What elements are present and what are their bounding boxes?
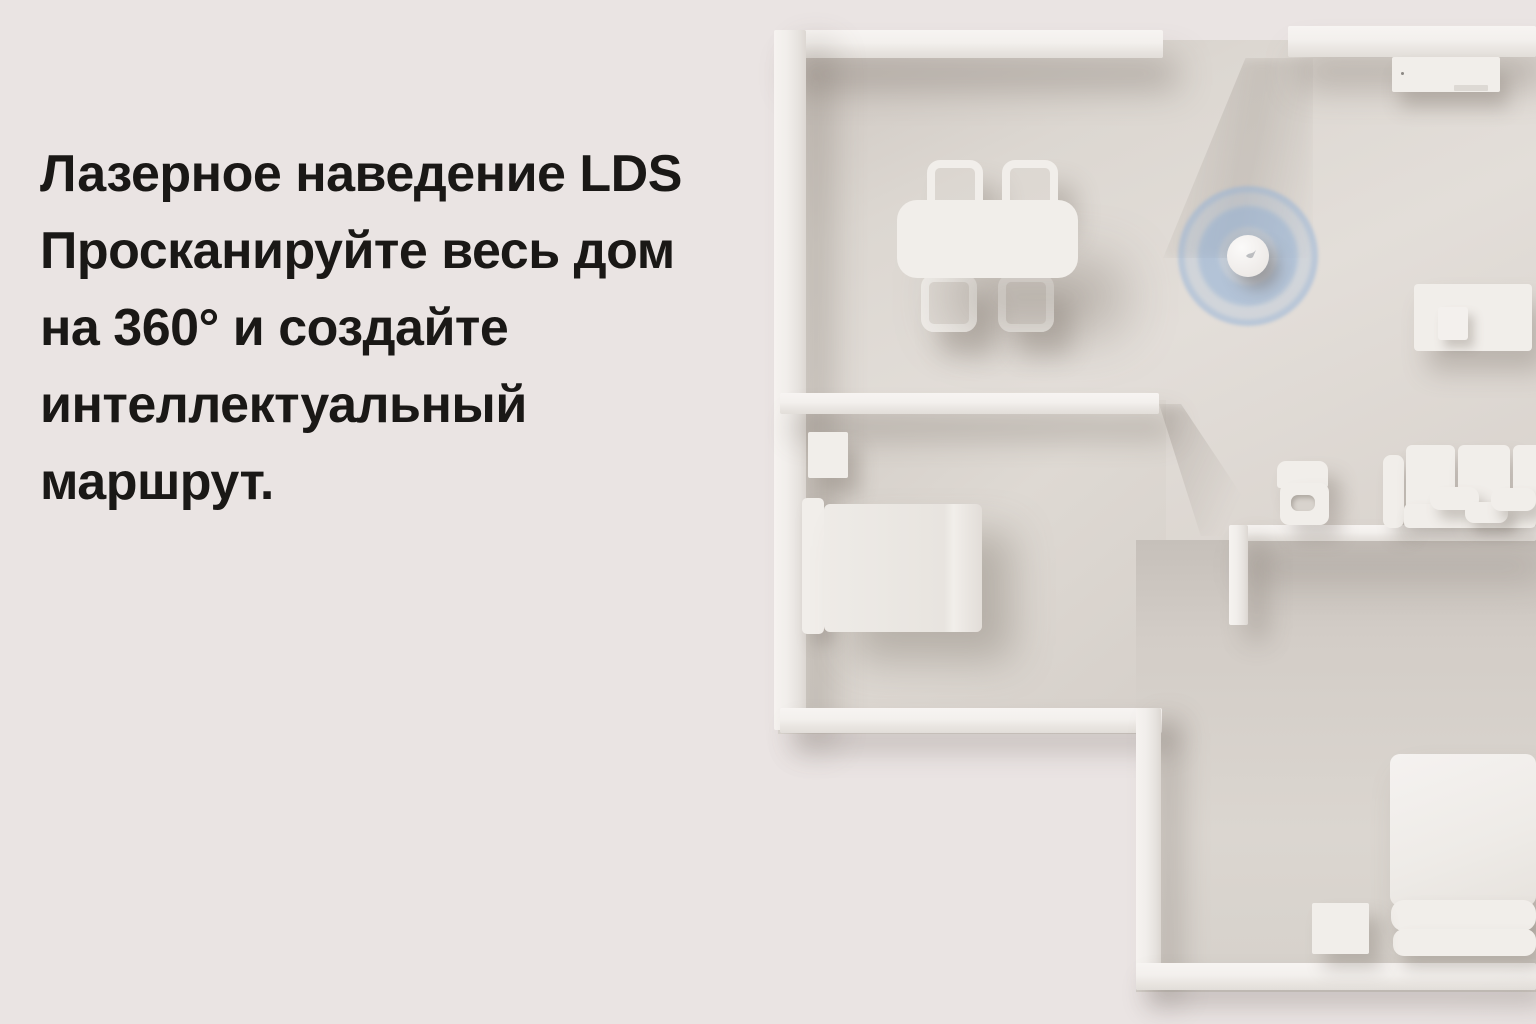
headline-line-3: на 360° и создайте (40, 290, 682, 367)
marketing-banner: Лазерное наведение LDS Просканируйте вес… (0, 0, 1536, 1024)
bed-mattress (824, 504, 982, 632)
tv-panel (1392, 57, 1500, 92)
wall-bedroom-divider (780, 393, 1159, 414)
wall-bottom (1136, 963, 1536, 990)
headline: Лазерное наведение LDS Просканируйте вес… (40, 136, 682, 521)
dining-chair-bottom-left (921, 274, 977, 332)
wall-bottom-room-left (1136, 708, 1161, 990)
storage-cube (1312, 903, 1369, 954)
wall-top-right (1288, 26, 1536, 57)
high-chair-hole (1291, 495, 1315, 511)
futon-roll-bottom (1393, 929, 1536, 956)
wall-living-vertical-arm (1229, 525, 1248, 625)
futon-roll-top (1391, 900, 1536, 931)
high-chair-seat (1280, 483, 1329, 525)
dining-table (897, 200, 1078, 278)
headline-line-2: Просканируйте весь дом (40, 213, 682, 290)
headline-line-5: маршрут. (40, 444, 682, 521)
bed-headboard (802, 498, 824, 634)
futon-panel (1390, 754, 1536, 906)
desk (1414, 284, 1532, 351)
nightstand (808, 432, 848, 478)
dining-chair-bottom-right (998, 274, 1054, 332)
sofa-armrest (1383, 455, 1404, 528)
headline-line-4: интеллектуальный (40, 367, 682, 444)
wall-bedroom-bottom (780, 708, 1162, 733)
robot-logo-icon (1245, 249, 1261, 261)
tv-indicator-dot (1401, 72, 1404, 75)
wall-top-left (780, 30, 1163, 58)
desk-box (1438, 307, 1468, 340)
robot-vacuum (1227, 235, 1269, 277)
sofa-pillow-3 (1491, 488, 1536, 511)
headline-line-1: Лазерное наведение LDS (40, 136, 682, 213)
tv-notch (1454, 85, 1488, 91)
